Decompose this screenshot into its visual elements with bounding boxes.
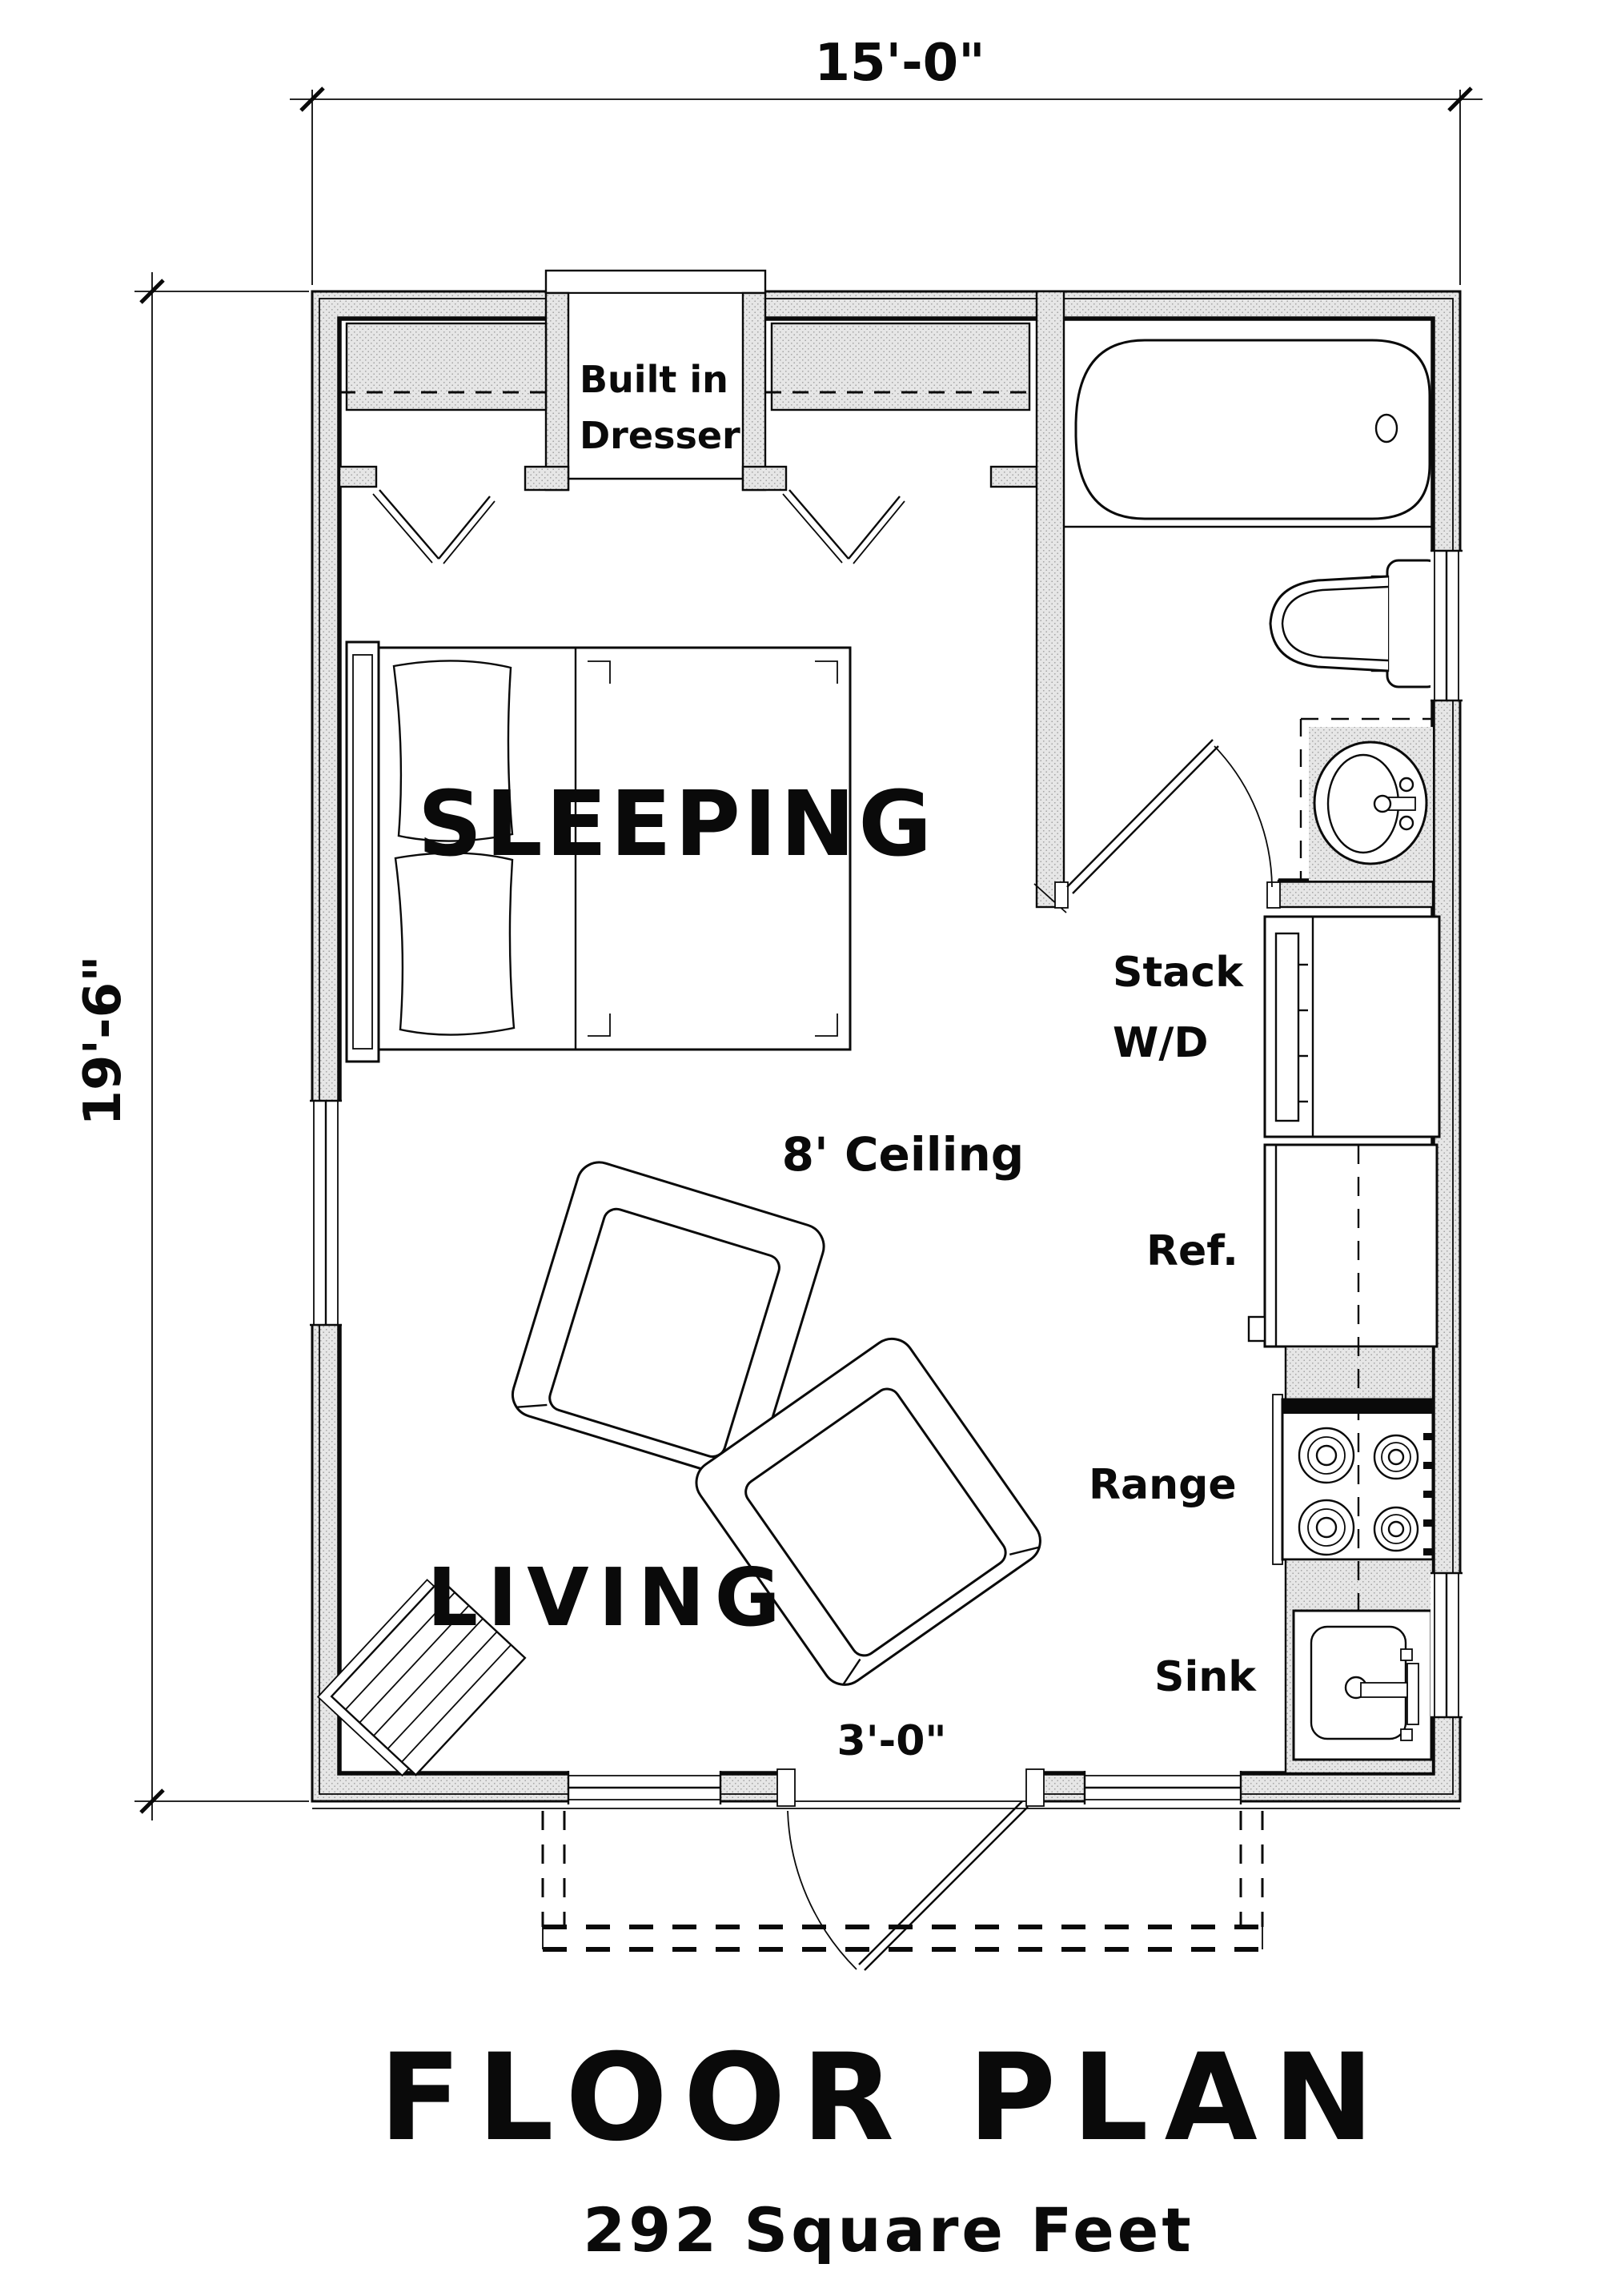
- wd-control-panel: [1276, 933, 1298, 1121]
- headboard: [347, 642, 379, 1062]
- window-right-kitchen: [1430, 1573, 1463, 1717]
- living-label: LIVING: [427, 1551, 789, 1644]
- sink-label: Sink: [1154, 1653, 1257, 1701]
- window-right-bath: [1430, 551, 1463, 700]
- dresser-label-line2: Dresser: [580, 414, 740, 457]
- drawing-subtitle: 292 Square Feet: [583, 2194, 1194, 2266]
- door-jamb: [1055, 882, 1068, 908]
- washer-dryer: [1265, 917, 1439, 1137]
- vanity-sink: [1301, 719, 1433, 881]
- dresser-label-line1: Built in: [580, 358, 728, 401]
- dim-depth-label: 19'-6": [74, 955, 133, 1126]
- fridge-label: Ref.: [1146, 1227, 1238, 1275]
- niche-wall-left: [546, 293, 568, 490]
- kitchen-sink: [1294, 1611, 1431, 1760]
- closet-shelf: [347, 323, 546, 410]
- door-jamb: [1267, 882, 1280, 908]
- bathroom-bottom-wall: [1278, 881, 1433, 907]
- laundry-label-line1: Stack: [1113, 949, 1244, 997]
- laundry-label-line2: W/D: [1113, 1019, 1209, 1067]
- window-bottom-left: [568, 1771, 720, 1804]
- fridge-handle: [1249, 1317, 1265, 1341]
- niche-wall-right: [743, 293, 765, 490]
- bathroom-wall: [1037, 291, 1064, 907]
- closet-shelf: [772, 323, 1029, 410]
- range: [1273, 1395, 1433, 1564]
- door-width-label: 3'-0": [837, 1717, 947, 1765]
- refrigerator: [1249, 1145, 1437, 1347]
- door-jamb: [1026, 1769, 1044, 1806]
- drawing-title: FLOOR PLAN: [379, 2029, 1390, 2168]
- ceiling-note: 8' Ceiling: [782, 1127, 1025, 1182]
- floor-plan-sheet: 15'-0" 19'-6": [0, 0, 1601, 2296]
- dresser-bump-out: [546, 271, 765, 293]
- pillow: [395, 853, 514, 1034]
- window-bottom-right: [1085, 1771, 1241, 1804]
- dim-width-label: 15'-0": [814, 34, 985, 93]
- floor-plan-drawing: 15'-0" 19'-6": [0, 0, 1601, 2296]
- range-backsplash: [1273, 1395, 1282, 1564]
- window-left-living: [310, 1101, 342, 1325]
- door-jamb: [777, 1769, 795, 1806]
- bathtub: [1064, 340, 1431, 527]
- range-label: Range: [1089, 1461, 1237, 1509]
- sleeping-label: SLEEPING: [418, 773, 935, 877]
